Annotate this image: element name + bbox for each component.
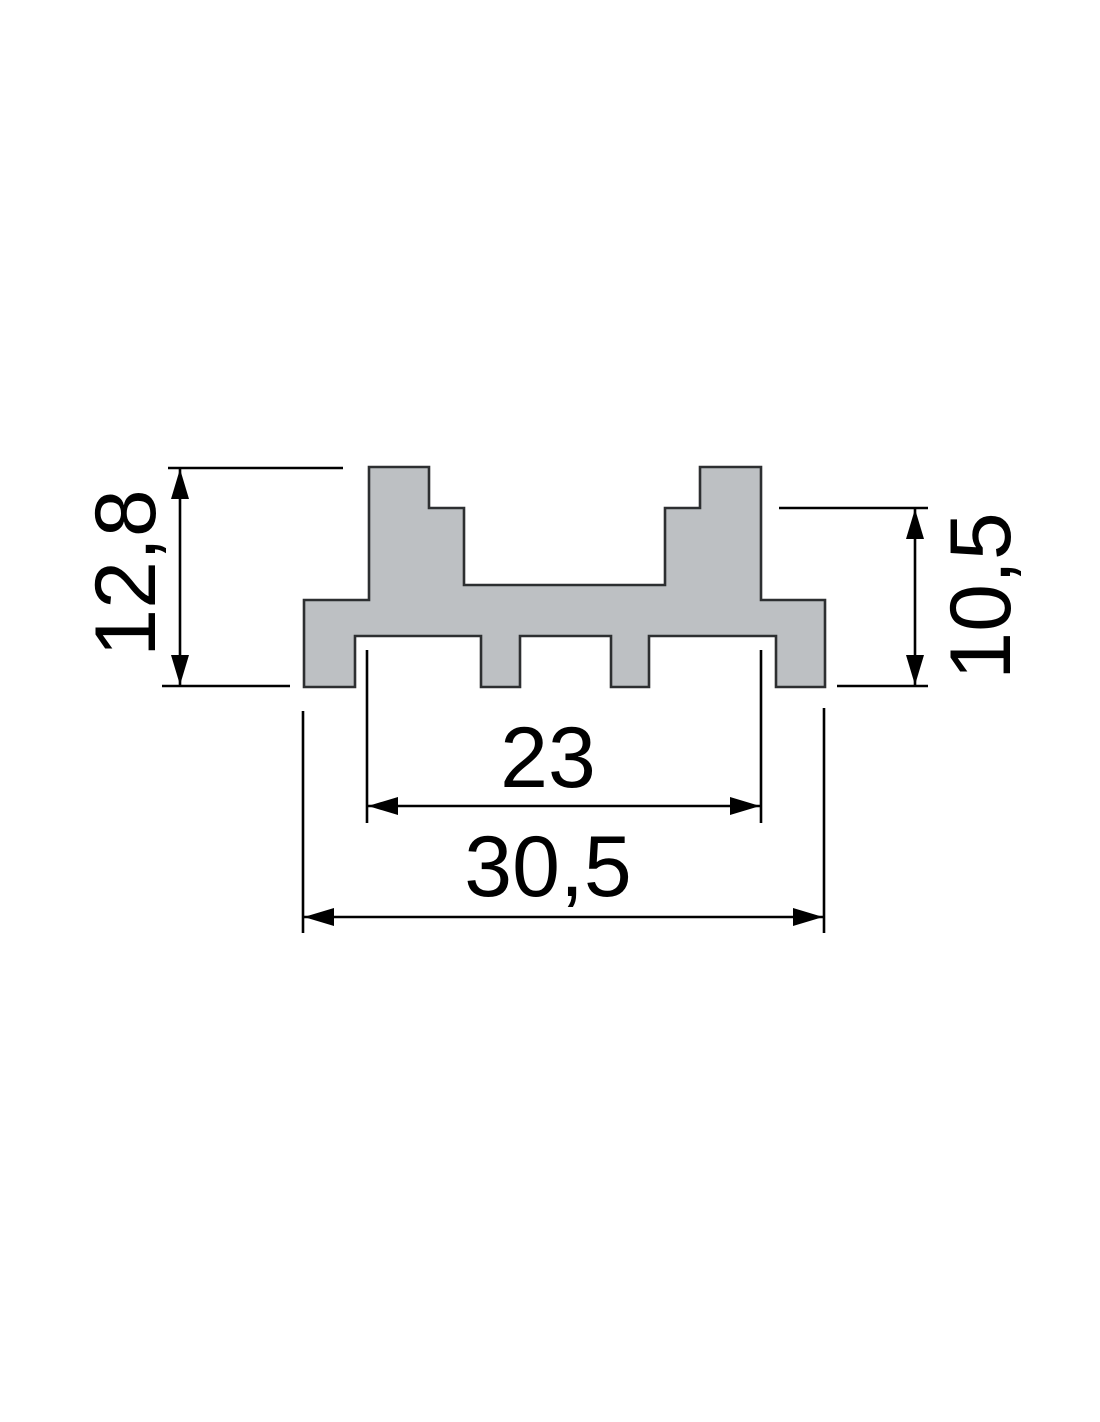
- profile-outline-shape: [304, 467, 825, 687]
- dimension-label: 30,5: [464, 819, 631, 915]
- profile-dimension-drawing: 12,8 10,5 23 30,5: [0, 0, 1100, 1422]
- technical-drawing-canvas: 12,8 10,5 23 30,5: [0, 0, 1100, 1422]
- dimension-label: 10,5: [933, 512, 1029, 679]
- arrow-up-icon: [906, 509, 924, 539]
- arrow-down-icon: [171, 655, 189, 685]
- arrow-right-icon: [793, 908, 823, 926]
- dimension-label: 23: [500, 710, 596, 806]
- arrow-left-icon: [368, 797, 398, 815]
- arrow-right-icon: [730, 797, 760, 815]
- dimension-label: 12,8: [78, 489, 174, 656]
- dimension-inner-width: 23: [367, 650, 761, 823]
- profile-cross-section: [304, 467, 825, 687]
- arrow-down-icon: [906, 655, 924, 685]
- arrow-left-icon: [304, 908, 334, 926]
